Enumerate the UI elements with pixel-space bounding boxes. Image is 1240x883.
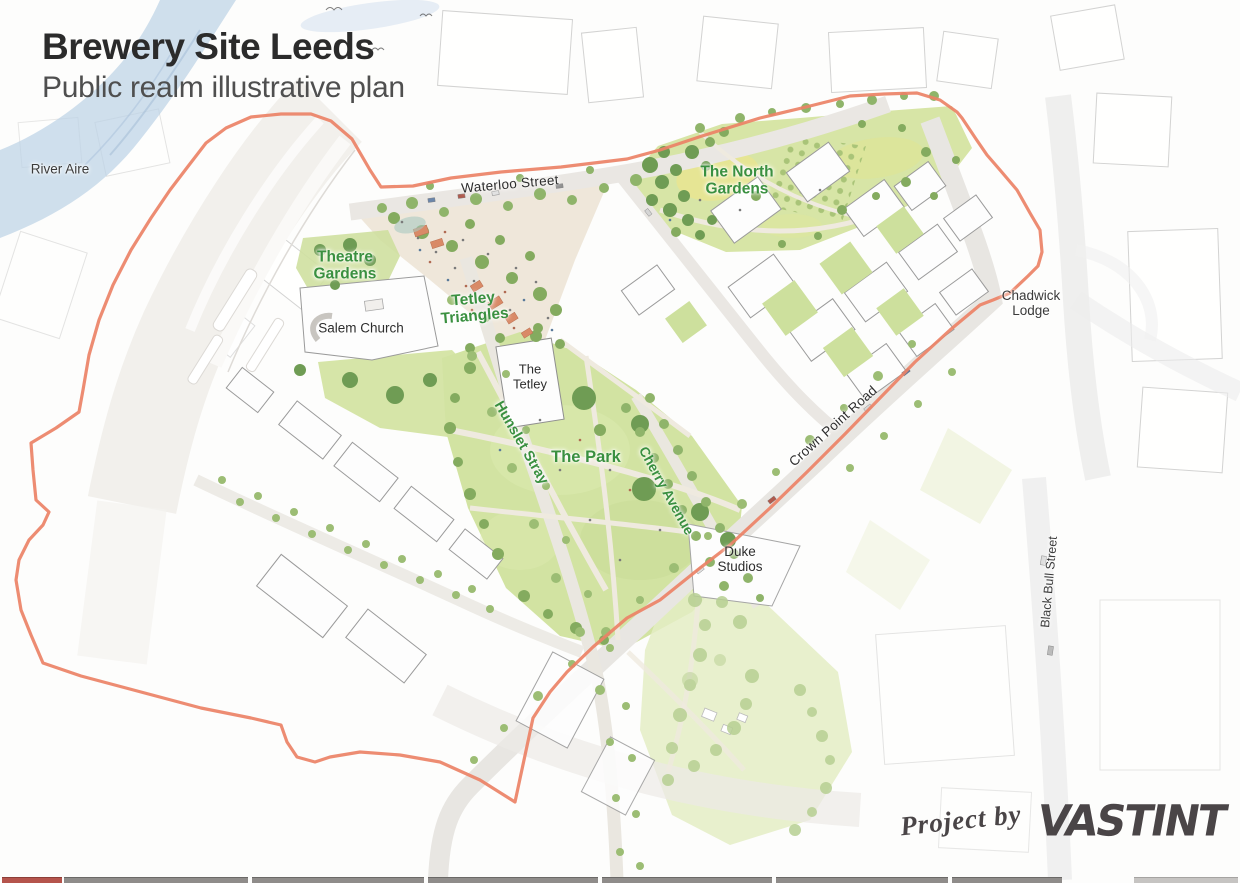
scale-bar-segment	[602, 877, 772, 883]
label-tetley-triangles: Tetley Triangles	[433, 287, 516, 329]
plan-canvas: Brewery Site Leeds Public realm illustra…	[0, 0, 1240, 883]
salem-church-building	[300, 276, 438, 360]
credit-prefix-text: Project by	[899, 799, 1023, 843]
label-duke-studios: Duke Studios	[708, 544, 772, 574]
label-salem-church: Salem Church	[318, 320, 404, 335]
scale-bar-segment	[252, 877, 424, 883]
scale-bar-segment	[428, 877, 598, 883]
vastint-logo: VASTINT	[1033, 796, 1228, 846]
label-theatre-gardens: Theatre Gardens	[308, 249, 382, 284]
scale-bar-segment	[776, 877, 948, 883]
page-title: Brewery Site Leeds	[42, 26, 405, 68]
bottom-scale-strip	[0, 877, 1240, 883]
site-plan-artwork	[0, 0, 1240, 883]
scale-bar-segment	[1134, 877, 1238, 883]
scale-bar-segment	[2, 877, 62, 883]
label-the-tetley: The Tetley	[506, 362, 554, 391]
scale-bar-segment	[64, 877, 248, 883]
scale-bar-segment	[952, 877, 1062, 883]
header: Brewery Site Leeds Public realm illustra…	[42, 26, 405, 105]
page-subtitle: Public realm illustrative plan	[42, 71, 405, 105]
label-river-aire: River Aire	[31, 161, 90, 176]
label-the-park: The Park	[551, 448, 621, 466]
project-credit: Project by VASTINT	[900, 796, 1224, 845]
label-chadwick-lodge: Chadwick Lodge	[991, 288, 1071, 318]
label-north-gardens: The North Gardens	[696, 164, 778, 199]
